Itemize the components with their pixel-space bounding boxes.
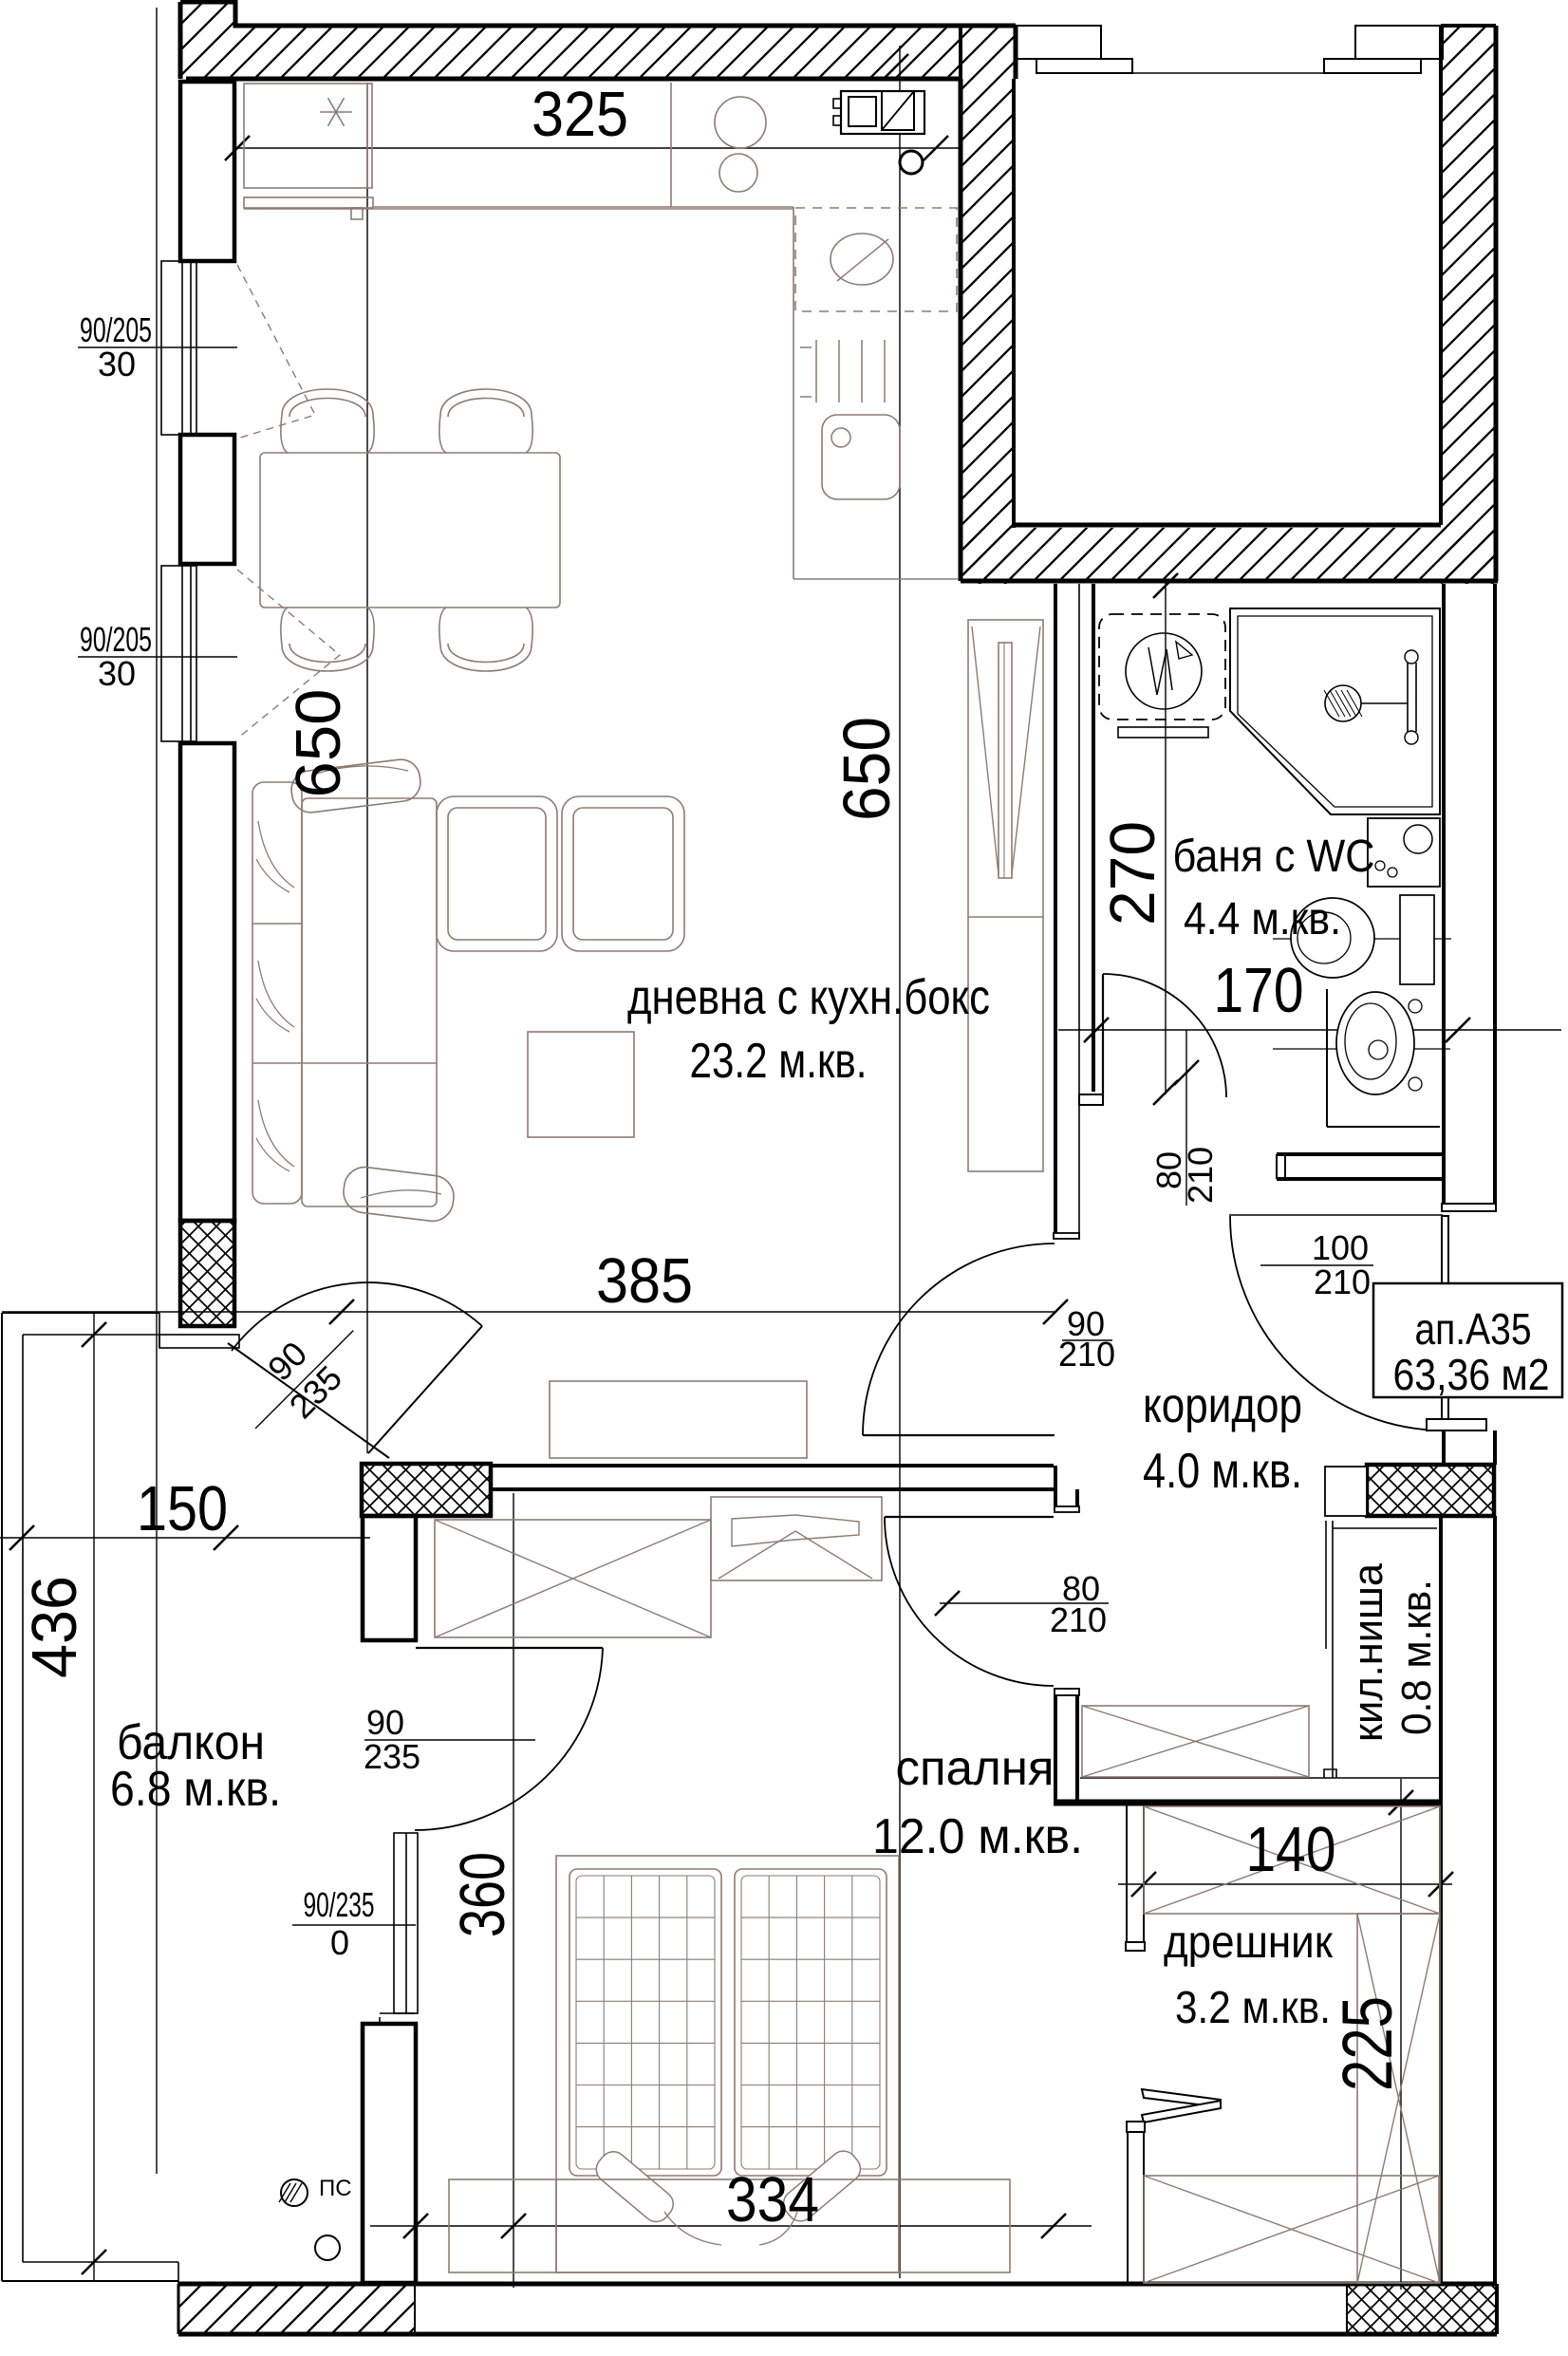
svg-text:ПС: ПС <box>319 2176 352 2201</box>
svg-text:325: 325 <box>532 79 628 150</box>
svg-text:12.0 м.кв.: 12.0 м.кв. <box>872 1809 1083 1864</box>
svg-text:3.2 м.кв.: 3.2 м.кв. <box>1175 1983 1331 2033</box>
svg-text:0: 0 <box>330 1923 349 1962</box>
svg-text:210: 210 <box>1058 1335 1115 1374</box>
svg-text:210: 210 <box>1314 1262 1371 1301</box>
svg-text:спалня: спалня <box>896 1741 1055 1796</box>
svg-text:385: 385 <box>596 1245 693 1317</box>
svg-text:коридор: коридор <box>1143 1378 1302 1433</box>
svg-text:210: 210 <box>1181 1147 1220 1204</box>
svg-text:334: 334 <box>726 2164 819 2235</box>
svg-text:436: 436 <box>19 1576 90 1678</box>
svg-text:23.2 м.кв.: 23.2 м.кв. <box>690 1034 868 1089</box>
svg-text:30: 30 <box>98 345 136 383</box>
svg-text:90: 90 <box>366 1703 404 1742</box>
svg-text:140: 140 <box>1246 1814 1336 1885</box>
svg-text:кил.ниша: кил.ниша <box>1345 1562 1391 1742</box>
svg-text:баня с WC: баня с WC <box>1173 832 1375 882</box>
svg-text:63,36 м2: 63,36 м2 <box>1393 1350 1550 1399</box>
svg-text:210: 210 <box>1050 1600 1107 1639</box>
svg-text:270: 270 <box>1097 821 1168 926</box>
svg-text:90/235: 90/235 <box>304 1885 375 1924</box>
svg-text:90/205: 90/205 <box>80 620 152 659</box>
svg-text:6.8 м.кв.: 6.8 м.кв. <box>110 1762 281 1817</box>
svg-text:0.8 м.кв.: 0.8 м.кв. <box>1393 1580 1440 1735</box>
svg-text:4.0 м.кв.: 4.0 м.кв. <box>1143 1444 1302 1499</box>
svg-text:4.4 м.кв.: 4.4 м.кв. <box>1184 894 1341 944</box>
svg-text:150: 150 <box>137 1473 228 1544</box>
svg-text:360: 360 <box>447 1852 518 1937</box>
svg-text:650: 650 <box>830 717 904 821</box>
svg-text:90/205: 90/205 <box>80 310 152 349</box>
svg-text:100: 100 <box>1312 1228 1369 1267</box>
svg-text:30: 30 <box>98 654 136 693</box>
svg-text:ап.А35: ап.А35 <box>1415 1304 1532 1354</box>
svg-text:650: 650 <box>283 689 354 798</box>
svg-text:дневна с кухн.бокс: дневна с кухн.бокс <box>627 970 990 1025</box>
svg-text:дрешник: дрешник <box>1164 1917 1334 1968</box>
svg-text:225: 225 <box>1328 1996 1407 2091</box>
svg-text:170: 170 <box>1214 955 1304 1026</box>
svg-text:235: 235 <box>364 1737 420 1776</box>
